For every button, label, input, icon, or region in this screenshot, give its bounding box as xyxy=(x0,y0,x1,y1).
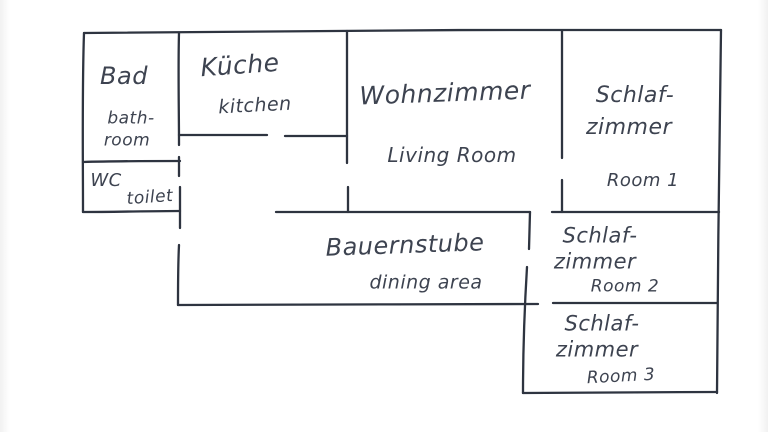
room-label-wohnzimmer-en: Living Room xyxy=(387,145,516,165)
room-label-schlafzimmer3-en: Room 3 xyxy=(586,367,655,388)
room-label-bad-de: Bad xyxy=(100,64,148,88)
room-label-bad-en-line1: bath- xyxy=(107,111,154,128)
room-label-wc-de: WC xyxy=(90,172,121,190)
room-label-schlafzimmer3-de-line1: Schlaf- xyxy=(565,314,640,335)
wall-room3-bottom xyxy=(523,392,717,393)
floorplan-canvas: Bad bath- room Küche kitchen Wohnzimmer … xyxy=(0,0,768,432)
wall-room2-room3-left xyxy=(523,267,527,393)
wall-outer-left xyxy=(83,33,84,212)
wall-room2-left-upper xyxy=(529,212,530,249)
room-label-wohnzimmer-de: Wohnzimmer xyxy=(359,78,531,109)
room-label-bauernstube-en: dining area xyxy=(369,274,482,293)
wall-bad-bottom xyxy=(83,161,180,162)
room-label-schlafzimmer3-de-line2: zimmer xyxy=(556,340,638,361)
room-label-schlafzimmer1-en: Room 1 xyxy=(607,172,679,190)
room-label-schlafzimmer2-en: Room 2 xyxy=(591,279,659,296)
room-label-wc-en: toilet xyxy=(126,188,174,208)
wall-bauernstube-bottom xyxy=(178,304,538,305)
room-label-schlafzimmer1-de-line2: zimmer xyxy=(586,117,672,139)
room-label-kueche-de: Küche xyxy=(200,50,281,80)
wall-bauernstube-left xyxy=(178,245,179,305)
room-label-kueche-en: kitchen xyxy=(218,95,292,118)
room-label-schlafzimmer1-de-line1: Schlaf- xyxy=(596,85,674,107)
room-label-schlafzimmer2-de-line2: zimmer xyxy=(554,252,636,273)
room-label-bauernstube-de: Bauernstube xyxy=(325,230,485,260)
room-label-schlafzimmer2-de-line1: Schlaf- xyxy=(563,226,638,247)
room-label-bad-en-line2: room xyxy=(104,133,150,150)
wall-wc-bottom xyxy=(83,211,180,212)
